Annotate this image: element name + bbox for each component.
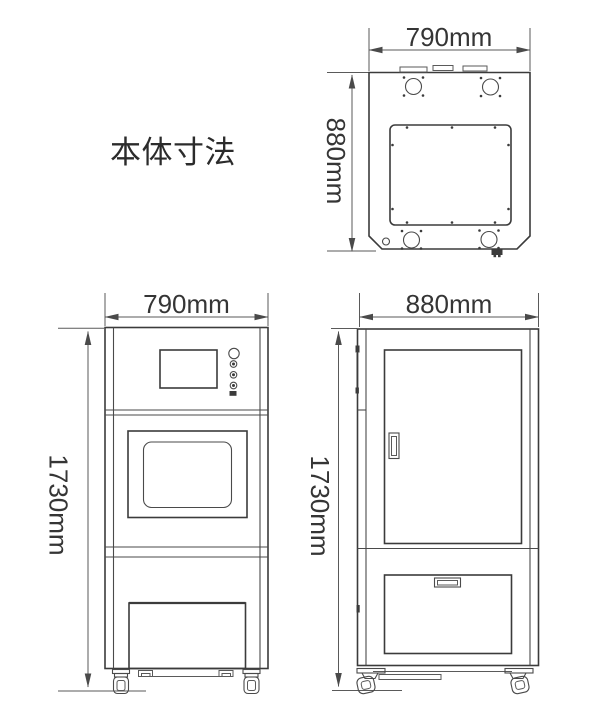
front-height-label: 1730mm: [44, 454, 74, 555]
top-depth-label: 880mm: [321, 118, 351, 205]
small-hole: [383, 238, 390, 245]
indicator-buttons[interactable]: [230, 361, 237, 389]
caster-wheel: [113, 670, 130, 694]
drawer-front[interactable]: [129, 603, 246, 669]
top-depth-dimension: 880mm: [321, 73, 376, 252]
vent-slot: [463, 66, 487, 71]
page-title: 本体寸法: [110, 135, 236, 170]
caster-wheel: [505, 669, 533, 695]
dimension-drawing: 本体寸法 790mm 880mm: [0, 0, 600, 714]
power-connector: [492, 250, 503, 258]
top-view: 790mm 880mm: [321, 22, 530, 257]
vent-slot: [400, 67, 427, 72]
top-width-label: 790mm: [406, 22, 493, 52]
fan-vent: [480, 77, 502, 98]
window-glass: [144, 442, 232, 508]
door-handle[interactable]: [389, 433, 399, 459]
caster-wheel: [243, 670, 260, 694]
diagram-canvas: 本体寸法 790mm 880mm: [0, 0, 600, 714]
side-door[interactable]: [385, 350, 522, 544]
front-width-dimension: 790mm: [105, 289, 268, 326]
side-view: 880mm 1730mm: [305, 289, 539, 695]
fan-vent: [403, 76, 425, 97]
power-button[interactable]: [229, 348, 239, 358]
side-width-dimension: 880mm: [360, 289, 539, 327]
top-opening-panel: [390, 125, 511, 225]
fan-vent: [401, 230, 423, 250]
panel-handle[interactable]: [435, 578, 461, 587]
front-width-label: 790mm: [143, 289, 230, 319]
side-width-label: 880mm: [406, 289, 493, 319]
vent-slots: [400, 66, 487, 73]
base-rail: [379, 675, 441, 680]
section-dividers: [105, 410, 268, 557]
panel-screw-dots: [391, 126, 510, 224]
front-height-dimension: 1730mm: [44, 328, 147, 691]
front-view: 790mm 1730mm: [44, 289, 269, 694]
switch-block[interactable]: [230, 391, 237, 396]
side-height-dimension: 1730mm: [305, 329, 402, 691]
display-screen[interactable]: [160, 350, 217, 388]
foot-pad: [139, 671, 153, 677]
fan-vent: [478, 229, 500, 249]
top-width-dimension: 790mm: [369, 22, 530, 71]
fan-vents: [401, 76, 502, 250]
side-height-label: 1730mm: [305, 455, 335, 556]
top-body-outline: [369, 73, 530, 250]
foot-pad: [219, 671, 233, 677]
vent-slot: [433, 66, 453, 71]
